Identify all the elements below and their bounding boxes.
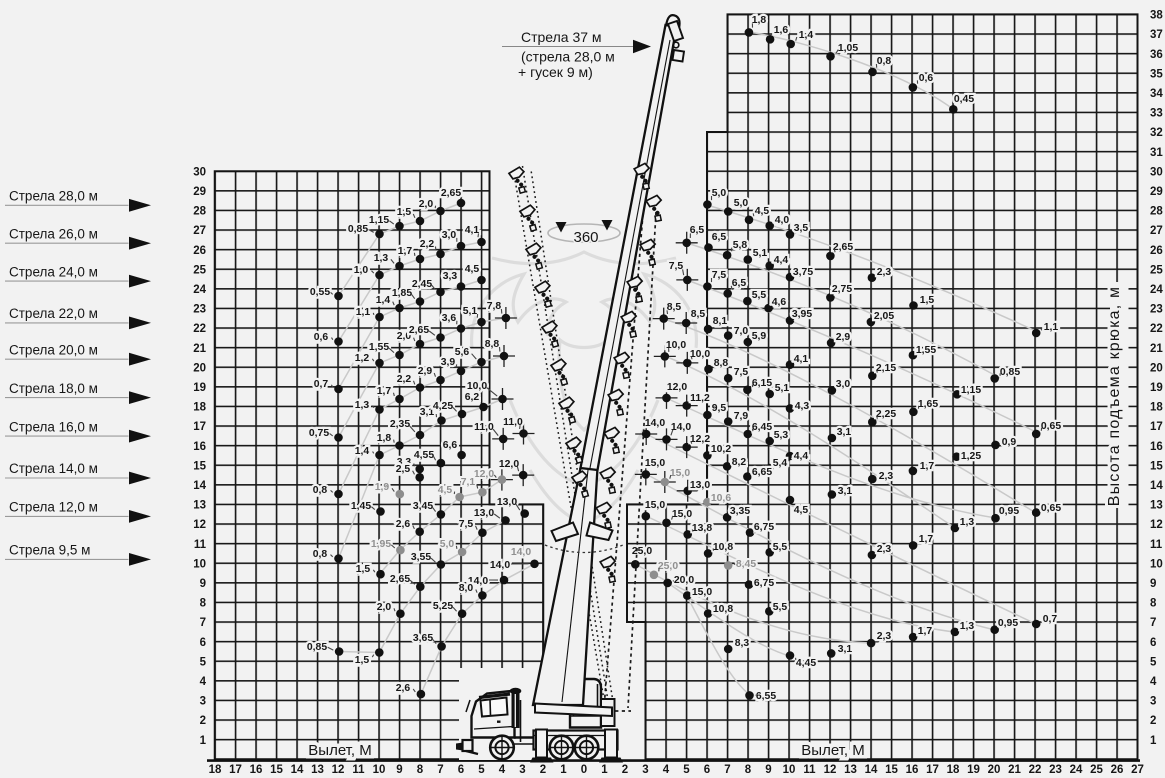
svg-text:8,8: 8,8 [485,339,500,350]
svg-text:17: 17 [229,764,242,776]
svg-text:10,0: 10,0 [467,381,487,392]
svg-text:4,45: 4,45 [796,658,816,669]
svg-text:1,85: 1,85 [392,288,412,299]
svg-text:6,2: 6,2 [465,392,480,403]
svg-text:14,0: 14,0 [671,422,691,433]
svg-text:1,3: 1,3 [355,400,370,411]
svg-text:1: 1 [560,764,567,776]
svg-text:1,55: 1,55 [916,345,936,356]
svg-text:8: 8 [745,764,752,776]
svg-text:14,0: 14,0 [511,547,531,558]
svg-text:1: 1 [1150,735,1157,747]
svg-text:30: 30 [1150,166,1163,178]
svg-text:2,15: 2,15 [876,363,896,374]
svg-text:15,0: 15,0 [692,587,712,598]
svg-text:Стрела 16,0 м: Стрела 16,0 м [9,419,98,434]
svg-text:25: 25 [193,264,206,276]
svg-text:2,25: 2,25 [876,409,896,420]
svg-text:10,0: 10,0 [690,349,710,360]
svg-text:10: 10 [1150,558,1163,570]
svg-text:Стрела 26,0 м: Стрела 26,0 м [9,226,98,241]
svg-text:1,0: 1,0 [354,265,369,276]
svg-text:3: 3 [1150,696,1156,708]
svg-text:26: 26 [1111,764,1124,776]
svg-text:6,5: 6,5 [732,278,747,289]
svg-text:3,75: 3,75 [793,267,813,278]
svg-text:23: 23 [193,304,206,316]
svg-text:19: 19 [967,764,980,776]
svg-text:9,5: 9,5 [712,403,727,414]
svg-text:12,2: 12,2 [690,434,710,445]
svg-text:8,5: 8,5 [667,302,682,313]
svg-text:11: 11 [1150,539,1163,551]
svg-text:4,5: 4,5 [755,206,770,217]
svg-text:6,75: 6,75 [754,522,774,533]
svg-text:1,7: 1,7 [918,626,933,637]
svg-text:5,1: 5,1 [753,248,768,259]
svg-text:8,0: 8,0 [459,583,474,594]
svg-text:5,4: 5,4 [773,458,788,469]
svg-text:5: 5 [478,764,485,776]
svg-text:1,5: 1,5 [397,207,412,218]
svg-text:6: 6 [1150,637,1156,649]
svg-text:13: 13 [193,500,206,512]
svg-text:12: 12 [332,764,345,776]
svg-text:12,0: 12,0 [667,382,687,393]
svg-text:1,5: 1,5 [920,295,935,306]
svg-text:15: 15 [193,460,206,472]
svg-text:19: 19 [193,382,206,394]
svg-text:18: 18 [193,402,206,414]
svg-text:5,6: 5,6 [455,347,470,358]
svg-text:18: 18 [209,764,222,776]
svg-text:3,65: 3,65 [413,633,433,644]
svg-text:2,65: 2,65 [409,325,429,336]
svg-text:1,8: 1,8 [377,433,392,444]
svg-text:6,65: 6,65 [752,467,772,478]
svg-text:15,0: 15,0 [672,509,692,520]
svg-text:25,0: 25,0 [658,561,678,572]
svg-text:31: 31 [1150,147,1163,159]
svg-text:27: 27 [1150,225,1163,237]
svg-text:13: 13 [1150,500,1163,512]
svg-text:0,8: 0,8 [877,56,892,67]
svg-text:17: 17 [193,421,206,433]
svg-text:2,6: 2,6 [396,519,411,530]
svg-text:6,75: 6,75 [754,578,774,589]
svg-text:1,6: 1,6 [774,25,789,36]
svg-text:3: 3 [519,764,525,776]
svg-text:24: 24 [1070,764,1083,776]
svg-text:6,5: 6,5 [690,225,705,236]
svg-text:13,8: 13,8 [692,523,712,534]
svg-text:0,8: 0,8 [313,549,328,560]
svg-text:0,55: 0,55 [310,287,330,298]
svg-text:13: 13 [844,764,857,776]
svg-text:+ гусек 9 м): + гусек 9 м) [518,64,593,80]
svg-text:23: 23 [1049,764,1062,776]
svg-text:0,65: 0,65 [1041,421,1061,432]
svg-text:1,15: 1,15 [369,215,389,226]
svg-text:23: 23 [1150,304,1163,316]
svg-text:34: 34 [1150,88,1163,100]
svg-text:6: 6 [704,764,710,776]
svg-text:5: 5 [683,764,690,776]
svg-text:2: 2 [200,715,206,727]
svg-text:8,1: 8,1 [713,316,728,327]
svg-text:1,3: 1,3 [960,621,975,632]
svg-text:10: 10 [373,764,386,776]
svg-text:3: 3 [642,764,648,776]
svg-text:21: 21 [193,343,206,355]
svg-text:11: 11 [352,764,365,776]
svg-text:4,25: 4,25 [433,401,453,412]
svg-text:2,45: 2,45 [412,279,432,290]
svg-text:4,5: 4,5 [438,485,453,496]
svg-text:2: 2 [1150,715,1156,727]
svg-text:6: 6 [458,764,464,776]
svg-text:2,2: 2,2 [420,239,435,250]
svg-text:35: 35 [1150,68,1163,80]
svg-text:2: 2 [622,764,628,776]
svg-text:7,8: 7,8 [487,301,502,312]
svg-text:0,95: 0,95 [998,618,1018,629]
svg-text:18: 18 [947,764,960,776]
svg-text:11: 11 [194,539,207,551]
svg-text:5,5: 5,5 [773,602,788,613]
svg-text:0,65: 0,65 [1041,503,1061,514]
svg-text:3,45: 3,45 [413,501,433,512]
svg-text:Вылет, М: Вылет, М [308,742,371,759]
svg-text:22: 22 [193,323,206,335]
svg-text:10: 10 [193,558,206,570]
svg-text:20: 20 [988,764,1001,776]
svg-text:15: 15 [1150,460,1163,472]
svg-text:15: 15 [885,764,898,776]
svg-text:19: 19 [1150,382,1163,394]
svg-text:3,0: 3,0 [836,379,851,390]
svg-text:1,4: 1,4 [355,446,370,457]
svg-text:14,0: 14,0 [490,560,510,571]
svg-text:6,6: 6,6 [443,440,458,451]
svg-text:2,3: 2,3 [877,267,892,278]
svg-text:4: 4 [663,764,670,776]
svg-text:5: 5 [1150,656,1157,668]
svg-text:30: 30 [193,166,206,178]
svg-text:1,15: 1,15 [961,385,981,396]
svg-text:1,7: 1,7 [377,386,392,397]
svg-text:36: 36 [1150,49,1163,61]
svg-text:10,8: 10,8 [713,604,733,615]
svg-text:12: 12 [1150,519,1163,531]
svg-text:1,65: 1,65 [918,399,938,410]
svg-text:3,55: 3,55 [411,552,431,563]
svg-text:8,3: 8,3 [735,638,750,649]
svg-text:1,1: 1,1 [1044,322,1059,333]
svg-text:1,7: 1,7 [398,246,413,257]
svg-text:3,95: 3,95 [792,309,812,320]
svg-text:14: 14 [193,480,206,492]
svg-text:0,7: 0,7 [314,379,329,390]
svg-text:360: 360 [573,229,598,246]
svg-text:0,6: 0,6 [919,73,934,84]
svg-text:5: 5 [200,656,207,668]
svg-text:Стрела 9,5 м: Стрела 9,5 м [9,543,90,558]
svg-text:22: 22 [1150,323,1163,335]
svg-text:8,5: 8,5 [691,309,706,320]
svg-text:0,85: 0,85 [348,224,368,235]
svg-text:5,8: 5,8 [733,240,748,251]
svg-text:26: 26 [193,245,206,257]
svg-text:3,6: 3,6 [442,313,457,324]
svg-text:2,05: 2,05 [874,311,894,322]
svg-text:2,65: 2,65 [441,188,461,199]
svg-text:1,45: 1,45 [351,501,371,512]
svg-text:2: 2 [540,764,546,776]
svg-text:14: 14 [865,764,878,776]
svg-text:2,3: 2,3 [877,631,892,642]
svg-text:17: 17 [926,764,939,776]
svg-text:1,4: 1,4 [799,30,814,41]
svg-text:7,5: 7,5 [712,270,727,281]
svg-text:3,5: 3,5 [794,223,809,234]
svg-text:4,6: 4,6 [772,297,787,308]
svg-text:0,85: 0,85 [307,642,327,653]
svg-text:2,5: 2,5 [396,464,411,475]
svg-text:15,0: 15,0 [670,468,690,479]
svg-text:0,95: 0,95 [999,506,1019,517]
svg-text:0,7: 0,7 [1043,614,1058,625]
svg-text:8: 8 [417,764,424,776]
svg-text:7,1: 7,1 [461,477,476,488]
svg-text:2,65: 2,65 [833,242,853,253]
svg-text:16: 16 [906,764,919,776]
svg-text:Стрела 12,0 м: Стрела 12,0 м [9,500,98,515]
svg-text:3,35: 3,35 [730,506,750,517]
svg-text:2,65: 2,65 [390,574,410,585]
svg-text:Вылет, М: Вылет, М [801,742,864,759]
svg-text:3,1: 3,1 [838,486,853,497]
svg-text:6,45: 6,45 [752,422,772,433]
svg-text:1,9: 1,9 [375,482,390,493]
svg-text:1,95: 1,95 [371,539,391,550]
svg-text:12,0: 12,0 [499,459,519,470]
svg-text:9: 9 [200,578,206,590]
svg-text:6,15: 6,15 [752,378,772,389]
svg-text:1,4: 1,4 [376,295,391,306]
svg-text:9: 9 [396,764,402,776]
svg-text:4: 4 [499,764,506,776]
svg-text:11: 11 [803,764,816,776]
svg-text:7: 7 [200,617,206,629]
svg-text:3,0: 3,0 [442,230,457,241]
svg-text:25: 25 [1090,764,1103,776]
svg-text:(стрела 28,0 м: (стрела 28,0 м [521,49,615,65]
svg-text:4,1: 4,1 [465,225,480,236]
svg-text:25,0: 25,0 [632,546,652,557]
svg-text:3,1: 3,1 [838,644,853,655]
svg-text:5,5: 5,5 [773,542,788,553]
svg-text:28: 28 [193,206,206,218]
svg-text:1,55: 1,55 [369,342,389,353]
svg-text:1,1: 1,1 [356,307,371,318]
svg-text:24: 24 [1150,284,1163,296]
svg-text:4,3: 4,3 [795,401,810,412]
svg-text:24: 24 [193,284,206,296]
svg-text:29: 29 [1150,186,1163,198]
svg-text:5,0: 5,0 [734,198,749,209]
svg-text:2,35: 2,35 [390,419,410,430]
svg-text:Стрела 37 м: Стрела 37 м [521,29,602,45]
svg-text:1,25: 1,25 [961,451,981,462]
svg-text:5,9: 5,9 [752,331,767,342]
svg-text:8: 8 [1150,598,1157,610]
svg-text:2,6: 2,6 [396,683,411,694]
svg-text:18: 18 [1150,402,1163,414]
svg-text:7,5: 7,5 [459,519,474,530]
svg-text:1,05: 1,05 [838,43,858,54]
svg-text:27: 27 [193,225,206,237]
svg-text:21: 21 [1150,343,1163,355]
svg-text:14,0: 14,0 [645,418,665,429]
svg-text:3,3: 3,3 [443,271,458,282]
svg-text:3: 3 [200,696,206,708]
svg-text:4,0: 4,0 [775,215,790,226]
svg-text:0,85: 0,85 [1000,367,1020,378]
svg-text:5,0: 5,0 [712,188,727,199]
svg-text:6,55: 6,55 [756,691,776,702]
svg-text:1,7: 1,7 [919,534,934,545]
svg-text:Стрела 14,0 м: Стрела 14,0 м [9,461,98,476]
svg-text:7,9: 7,9 [734,411,749,422]
svg-text:12: 12 [193,519,206,531]
svg-text:7: 7 [724,764,730,776]
svg-text:4,4: 4,4 [774,255,789,266]
svg-text:1,5: 1,5 [355,655,370,666]
svg-text:5,5: 5,5 [752,290,767,301]
svg-text:10,8: 10,8 [713,542,733,553]
svg-text:13,0: 13,0 [497,497,517,508]
svg-text:2,75: 2,75 [832,284,852,295]
svg-text:14: 14 [291,764,304,776]
svg-text:9: 9 [1150,578,1156,590]
svg-text:Стрела 20,0 м: Стрела 20,0 м [9,342,98,357]
svg-text:11,2: 11,2 [690,393,710,404]
svg-text:7: 7 [1150,617,1156,629]
svg-text:29: 29 [193,186,206,198]
svg-text:37: 37 [1150,29,1163,41]
svg-text:1,3: 1,3 [960,517,975,528]
svg-text:2,2: 2,2 [397,374,412,385]
svg-text:1: 1 [601,764,608,776]
svg-text:5,1: 5,1 [775,383,790,394]
svg-text:8,2: 8,2 [732,457,747,468]
svg-text:3,1: 3,1 [837,427,852,438]
svg-text:4,4: 4,4 [794,451,809,462]
svg-text:22: 22 [1029,764,1042,776]
svg-text:10,2: 10,2 [711,444,731,455]
svg-text:1,5: 1,5 [356,564,371,575]
svg-text:11,0: 11,0 [474,422,494,433]
svg-text:15,0: 15,0 [645,500,665,511]
svg-text:4: 4 [1150,676,1157,688]
svg-text:0: 0 [581,764,587,776]
svg-text:Стрела 24,0 м: Стрела 24,0 м [9,264,98,279]
svg-text:20: 20 [1150,362,1163,374]
svg-text:2,0: 2,0 [419,199,434,210]
svg-text:10,6: 10,6 [711,493,731,504]
svg-text:25: 25 [1150,264,1163,276]
svg-text:0,8: 0,8 [313,485,328,496]
svg-text:8: 8 [200,598,207,610]
svg-text:13,0: 13,0 [474,508,494,519]
svg-text:16: 16 [1150,441,1163,453]
svg-text:7,0: 7,0 [734,326,749,337]
svg-text:6,5: 6,5 [712,232,727,243]
svg-text:1: 1 [200,735,207,747]
svg-text:16: 16 [193,441,206,453]
svg-text:4: 4 [200,676,207,688]
svg-text:14: 14 [1150,480,1163,492]
svg-text:12,0: 12,0 [474,469,494,480]
svg-text:0,75: 0,75 [309,428,329,439]
svg-text:2,0: 2,0 [377,602,392,613]
svg-text:7,5: 7,5 [734,367,749,378]
svg-text:28: 28 [1150,206,1163,218]
svg-text:8,45: 8,45 [736,559,756,570]
svg-text:0,9: 0,9 [1002,437,1017,448]
svg-text:Стрела 22,0 м: Стрела 22,0 м [9,306,98,321]
svg-text:13,0: 13,0 [690,480,710,491]
svg-text:4,55: 4,55 [414,450,434,461]
svg-text:5,3: 5,3 [774,430,789,441]
svg-text:5,0: 5,0 [440,539,455,550]
svg-text:27: 27 [1131,764,1144,776]
svg-text:1,8: 1,8 [752,15,767,26]
svg-text:9: 9 [765,764,771,776]
svg-text:15,0: 15,0 [645,458,665,469]
svg-text:17: 17 [1150,421,1163,433]
svg-text:3,9: 3,9 [441,357,456,368]
svg-text:2,9: 2,9 [836,332,851,343]
svg-text:0,45: 0,45 [954,94,974,105]
svg-text:16: 16 [250,764,263,776]
svg-text:1,2: 1,2 [355,353,370,364]
svg-text:33: 33 [1150,108,1163,120]
svg-text:21: 21 [1008,764,1021,776]
svg-text:7: 7 [437,764,443,776]
svg-text:5,25: 5,25 [433,601,453,612]
svg-text:15: 15 [270,764,283,776]
svg-text:2,3: 2,3 [879,471,894,482]
svg-text:10: 10 [783,764,796,776]
svg-text:8,8: 8,8 [714,358,729,369]
svg-text:Стрела 18,0 м: Стрела 18,0 м [9,381,98,396]
svg-text:1,3: 1,3 [374,253,389,264]
svg-text:20: 20 [193,362,206,374]
svg-text:32: 32 [1150,127,1163,139]
svg-text:4,1: 4,1 [794,354,809,365]
svg-text:1,7: 1,7 [920,461,935,472]
svg-text:38: 38 [1150,10,1163,22]
svg-text:20,0: 20,0 [674,575,694,586]
svg-text:4,5: 4,5 [465,264,480,275]
svg-text:26: 26 [1150,245,1163,257]
svg-text:13: 13 [311,764,324,776]
svg-text:2,3: 2,3 [877,544,892,555]
svg-text:Стрела 28,0 м: Стрела 28,0 м [9,189,98,204]
svg-text:2,9: 2,9 [418,366,433,377]
